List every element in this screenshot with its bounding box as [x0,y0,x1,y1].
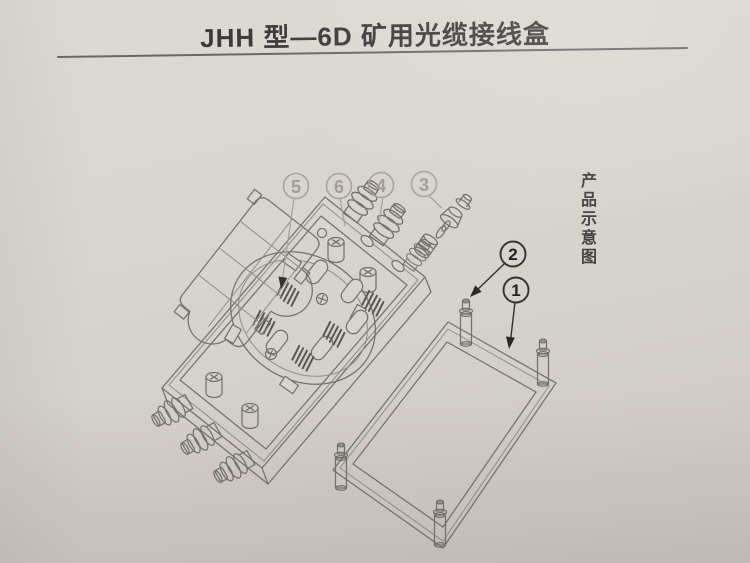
splice-tray [206,225,401,411]
side-caption: 产品示意图 [575,172,597,267]
photo-of-document-page: JHH 型—6D 矿用光缆接线盒 [0,0,750,563]
exploded-view-diagram: 5 6 4 3 2 1 [0,0,750,563]
svg-text:2: 2 [508,245,517,264]
base-plate [333,299,556,548]
callout-5: 5 [284,174,309,199]
callout-6: 6 [327,174,352,199]
tray-clip [225,253,367,393]
svg-text:5: 5 [291,177,301,197]
callout-1: 1 [504,278,529,303]
callout-3: 3 [412,172,437,197]
svg-text:4: 4 [376,176,386,196]
svg-text:3: 3 [419,175,429,195]
gland-parts-exploded [413,191,475,260]
svg-text:1: 1 [511,281,520,300]
callout-2: 2 [501,242,526,267]
cable-gland [148,391,257,488]
svg-text:6: 6 [334,177,344,197]
